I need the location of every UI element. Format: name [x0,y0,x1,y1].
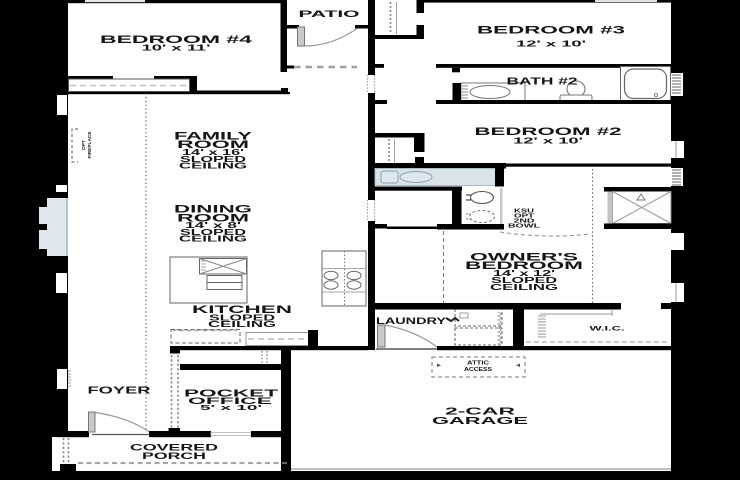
svg-text:12' x 10': 12' x 10' [513,137,583,146]
svg-text:ACCESS: ACCESS [464,367,493,373]
svg-text:ATTIC: ATTIC [467,361,489,367]
svg-text:FOYER: FOYER [88,386,152,397]
svg-text:BOWL: BOWL [508,224,540,230]
svg-text:OPT: OPT [81,140,87,150]
svg-text:BATH #2: BATH #2 [507,77,579,88]
svg-text:BEDROOM #3: BEDROOM #3 [477,25,625,37]
svg-text:CEILING: CEILING [490,283,558,292]
svg-text:CEILING: CEILING [179,162,247,171]
svg-text:W.I.C.: W.I.C. [590,327,626,333]
svg-text:10' x 11': 10' x 11' [142,44,211,53]
svg-text:CEILING: CEILING [179,235,247,244]
svg-text:PATIO: PATIO [299,9,360,20]
svg-text:PORCH: PORCH [142,451,206,461]
svg-text:12' x 10': 12' x 10' [516,40,586,49]
svg-text:LAUNDRY: LAUNDRY [376,316,447,327]
svg-text:FIREPLACE: FIREPLACE [87,131,93,159]
svg-text:GARAGE: GARAGE [432,415,528,427]
svg-text:CEILING: CEILING [208,320,276,329]
svg-text:5' x 10': 5' x 10' [200,403,263,412]
